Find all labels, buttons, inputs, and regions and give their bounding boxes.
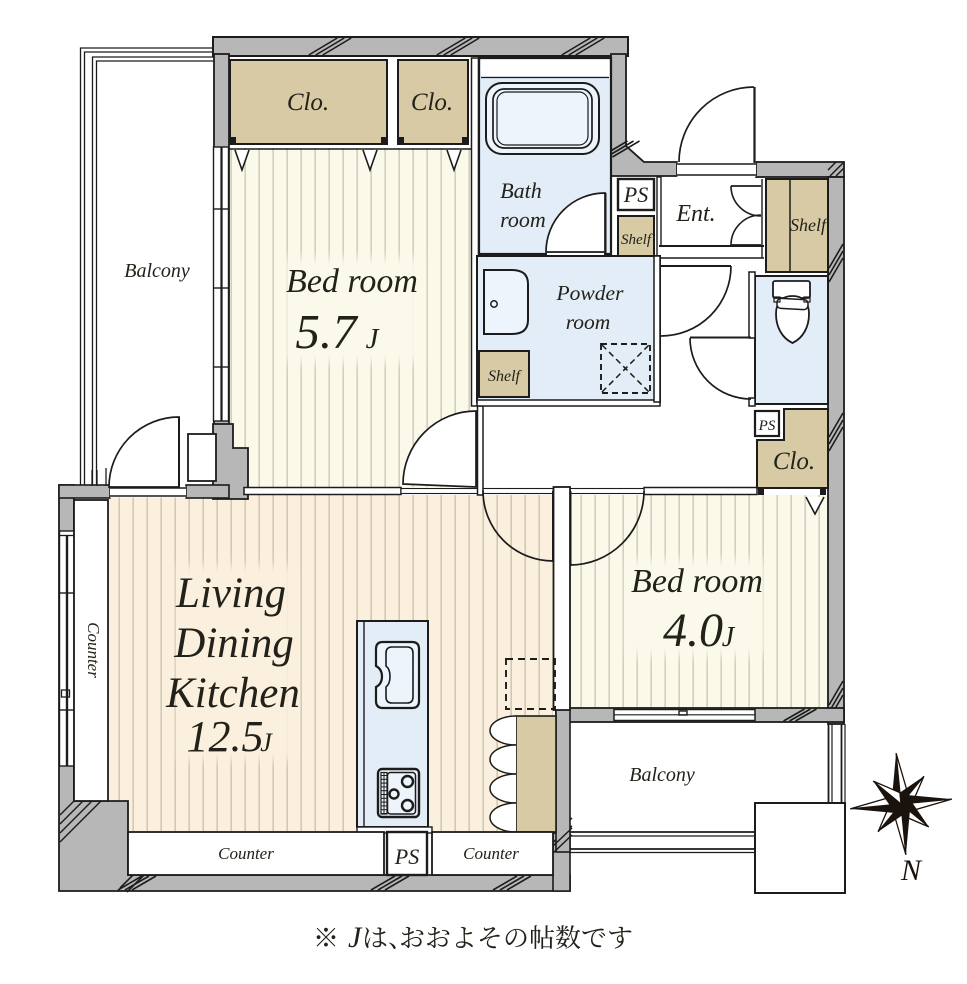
svg-text:Powder: Powder [556, 281, 625, 305]
svg-text:Kitchen: Kitchen [165, 670, 300, 717]
svg-text:Counter: Counter [84, 622, 103, 678]
svg-text:Counter: Counter [218, 844, 274, 863]
svg-text:PS: PS [758, 418, 776, 434]
svg-text:Ent.: Ent. [675, 201, 715, 227]
svg-text:PS: PS [623, 182, 648, 207]
svg-text:5.7: 5.7 [295, 304, 359, 359]
svg-text:Balcony: Balcony [124, 260, 190, 282]
svg-text:room: room [500, 207, 546, 232]
svg-text:Dining: Dining [173, 620, 293, 667]
svg-text:PS: PS [394, 844, 419, 869]
svg-text:Bed room: Bed room [631, 563, 763, 600]
svg-text:Bath: Bath [500, 178, 542, 203]
svg-text:Balcony: Balcony [629, 764, 695, 786]
svg-text:Clo.: Clo. [287, 89, 329, 116]
svg-text:J: J [366, 323, 380, 355]
svg-text:Living: Living [175, 570, 286, 617]
svg-text:Shelf: Shelf [790, 215, 829, 235]
svg-text:Shelf: Shelf [488, 368, 523, 385]
svg-text:room: room [566, 310, 611, 334]
svg-text:Bed room: Bed room [286, 263, 418, 300]
svg-text:J: J [260, 728, 273, 757]
svg-text:Counter: Counter [463, 844, 519, 863]
svg-text:N: N [900, 854, 923, 887]
svg-text:Clo.: Clo. [773, 448, 815, 475]
svg-text:J: J [722, 622, 736, 653]
svg-text:12.5: 12.5 [187, 712, 264, 761]
svg-text:Shelf: Shelf [621, 232, 653, 248]
svg-text:J: J [348, 921, 363, 954]
svg-text:Clo.: Clo. [411, 89, 453, 116]
svg-text:4.0: 4.0 [663, 604, 723, 657]
